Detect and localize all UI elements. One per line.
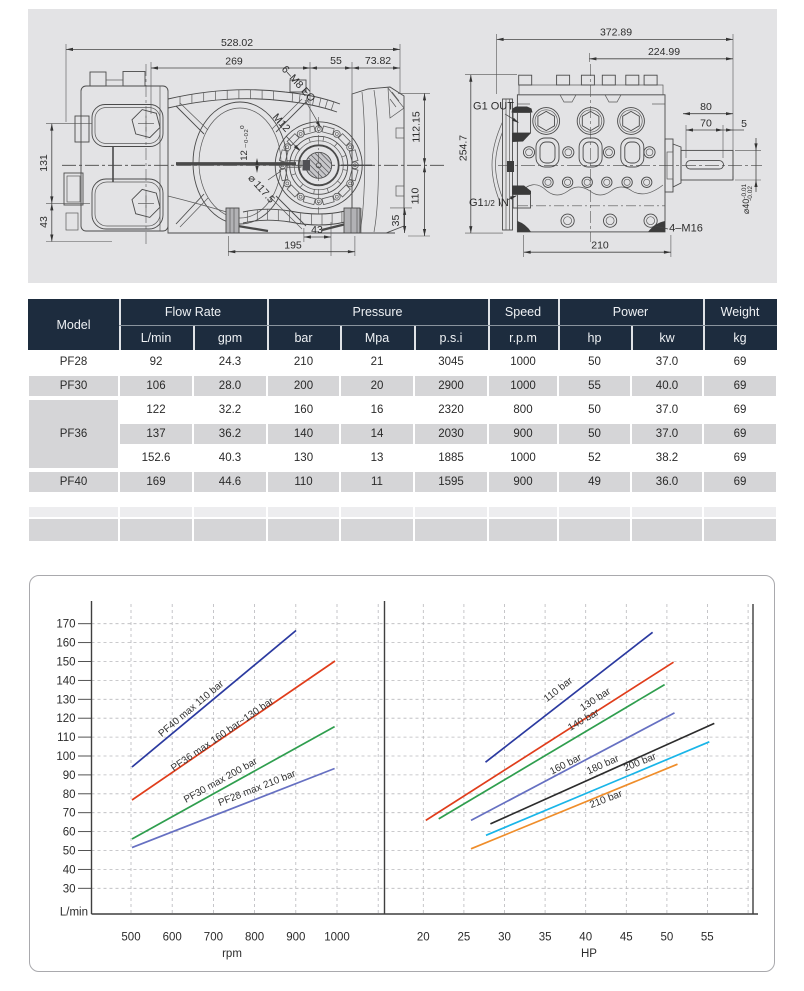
svg-text:20: 20 <box>417 932 430 944</box>
svg-text:40: 40 <box>579 932 592 944</box>
svg-text:50: 50 <box>63 846 76 858</box>
svg-text:25: 25 <box>458 932 471 944</box>
svg-text:600: 600 <box>163 932 182 944</box>
svg-text:1000: 1000 <box>324 932 350 944</box>
svg-text:500: 500 <box>121 932 140 944</box>
svg-text:rpm: rpm <box>222 948 242 960</box>
svg-text:35: 35 <box>539 932 552 944</box>
svg-text:100: 100 <box>56 751 75 763</box>
svg-text:120: 120 <box>56 713 75 725</box>
svg-text:80: 80 <box>63 789 76 801</box>
svg-text:110: 110 <box>57 732 75 744</box>
svg-text:55: 55 <box>701 932 714 944</box>
svg-text:900: 900 <box>286 932 305 944</box>
svg-text:45: 45 <box>620 932 633 944</box>
svg-text:HP: HP <box>581 948 597 960</box>
svg-text:160: 160 <box>56 638 75 650</box>
svg-text:110 bar: 110 bar <box>542 675 575 705</box>
svg-text:800: 800 <box>245 932 264 944</box>
svg-text:140: 140 <box>56 675 75 687</box>
svg-text:90: 90 <box>63 770 76 782</box>
svg-text:150: 150 <box>56 657 75 669</box>
svg-text:130: 130 <box>56 694 75 706</box>
svg-text:170: 170 <box>56 619 75 631</box>
svg-text:60: 60 <box>63 827 76 839</box>
svg-text:40: 40 <box>63 864 76 876</box>
svg-text:700: 700 <box>204 932 223 944</box>
svg-text:PF40 max 110 bar: PF40 max 110 bar <box>157 678 227 739</box>
svg-text:70: 70 <box>63 808 76 820</box>
svg-text:L/min: L/min <box>60 907 88 919</box>
svg-text:30: 30 <box>63 883 76 895</box>
svg-text:30: 30 <box>498 932 511 944</box>
svg-text:210 bar: 210 bar <box>588 788 624 811</box>
svg-text:50: 50 <box>661 932 674 944</box>
